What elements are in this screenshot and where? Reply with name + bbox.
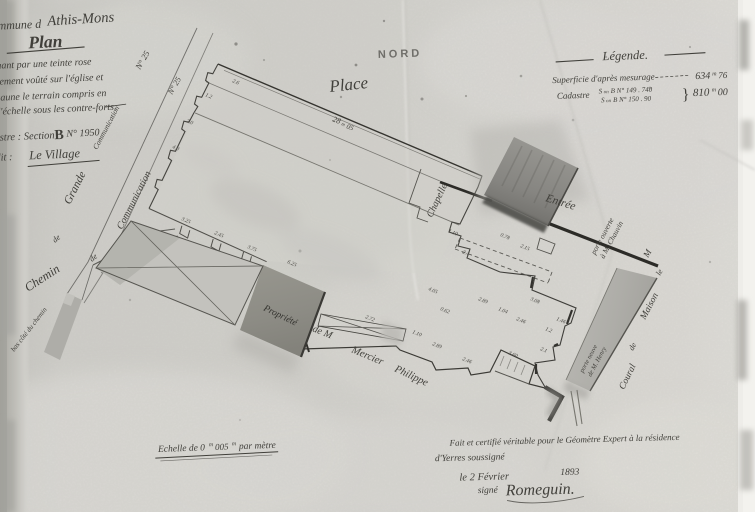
svg-text:Le Village: Le Village	[28, 146, 81, 162]
svg-text:}: }	[682, 86, 690, 103]
svg-text:d'Yerres soussigné: d'Yerres soussigné	[435, 452, 506, 464]
svg-text:Echelle de 0: Echelle de 0	[157, 443, 206, 455]
svg-text:B N° 150 . 90: B N° 150 . 90	[613, 95, 652, 104]
svg-text:Romeguin.: Romeguin.	[505, 481, 575, 500]
svg-text:le 2 Février: le 2 Février	[459, 471, 510, 483]
svg-text:810: 810	[693, 87, 710, 100]
svg-text:1893: 1893	[560, 467, 580, 478]
svg-text:par mètre: par mètre	[238, 441, 276, 452]
svg-text:B: B	[54, 128, 64, 143]
svg-text:on: on	[604, 90, 610, 95]
svg-text:005: 005	[215, 442, 229, 452]
svg-text:NORD: NORD	[378, 47, 423, 61]
svg-text:dit :: dit :	[0, 152, 13, 164]
svg-text:634: 634	[695, 71, 710, 83]
svg-text:signé: signé	[478, 486, 499, 497]
svg-text:Légende.: Légende.	[601, 48, 648, 64]
svg-text:B N° 149 . 740: B N° 149 . 740	[611, 86, 653, 95]
svg-text:Cadastre: Cadastre	[557, 90, 590, 101]
svg-text:00: 00	[718, 87, 728, 98]
svg-text:76: 76	[718, 70, 728, 80]
svg-text:on: on	[606, 99, 612, 104]
svg-text:ommune d: ommune d	[0, 17, 42, 33]
